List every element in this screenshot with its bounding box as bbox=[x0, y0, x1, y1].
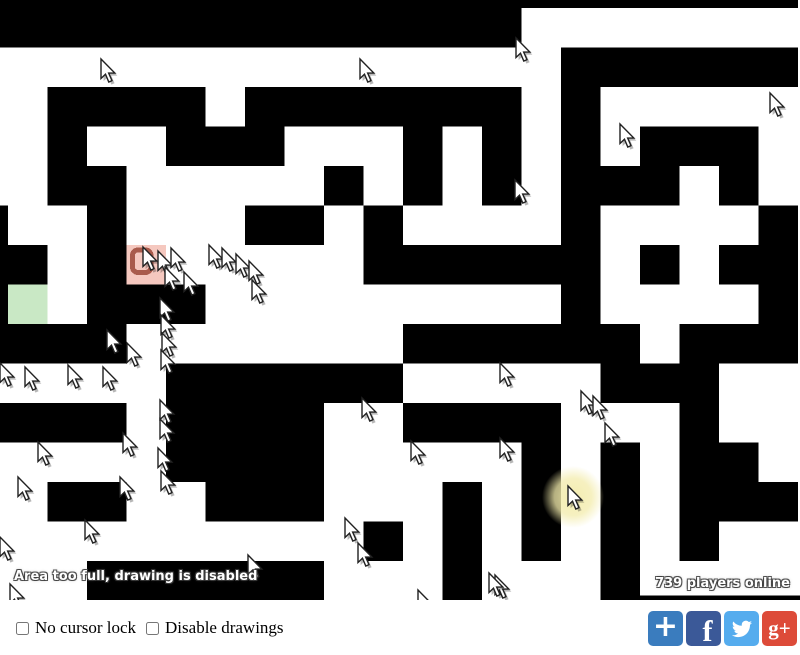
googleplus-icon: g+ bbox=[768, 618, 790, 639]
no-cursor-lock-checkbox[interactable] bbox=[16, 622, 29, 635]
player-cursor bbox=[593, 396, 609, 422]
player-cursor bbox=[0, 537, 16, 563]
player-cursor bbox=[362, 398, 378, 424]
twitter-button[interactable] bbox=[724, 611, 759, 646]
player-cursor bbox=[18, 477, 34, 503]
twitter-bird-icon bbox=[731, 618, 753, 640]
player-cursor bbox=[345, 518, 361, 544]
player-cursor bbox=[107, 330, 123, 356]
player-cursor bbox=[184, 272, 200, 298]
player-cursor bbox=[516, 38, 532, 64]
player-cursor bbox=[605, 423, 621, 449]
player-cursor bbox=[411, 441, 427, 467]
player-cursor bbox=[418, 590, 434, 600]
player-cursor bbox=[358, 543, 374, 569]
player-cursor bbox=[10, 584, 26, 600]
player-cursor bbox=[143, 247, 159, 273]
disable-drawings-checkbox[interactable] bbox=[146, 622, 159, 635]
player-cursor bbox=[0, 363, 16, 389]
player-cursor bbox=[620, 124, 636, 150]
player-cursor bbox=[770, 93, 786, 119]
player-cursor bbox=[85, 520, 101, 546]
addthis-share-icon: + bbox=[653, 612, 678, 642]
player-cursor bbox=[500, 363, 516, 389]
game-canvas[interactable]: Area too full, drawing is disabled 739 p… bbox=[0, 0, 800, 600]
addthis-share-button[interactable]: + bbox=[648, 611, 683, 646]
cursors-overlay bbox=[0, 0, 800, 600]
player-cursor bbox=[123, 433, 139, 459]
disable-drawings-label: Disable drawings bbox=[165, 618, 284, 638]
player-cursor bbox=[127, 343, 143, 369]
player-cursor bbox=[500, 438, 516, 464]
player-cursor bbox=[101, 59, 117, 85]
player-cursor bbox=[68, 365, 84, 391]
player-cursor bbox=[103, 367, 119, 393]
player-cursor bbox=[161, 471, 177, 497]
facebook-icon: f bbox=[703, 617, 713, 647]
player-cursor bbox=[171, 248, 187, 274]
options-row: No cursor lock Disable drawings bbox=[16, 618, 294, 638]
player-cursor bbox=[25, 367, 41, 393]
player-cursor bbox=[515, 180, 531, 206]
googleplus-button[interactable]: g+ bbox=[762, 611, 797, 646]
player-cursor bbox=[120, 477, 136, 503]
no-cursor-lock-label: No cursor lock bbox=[35, 618, 136, 638]
facebook-button[interactable]: f bbox=[686, 611, 721, 646]
player-cursor bbox=[360, 59, 376, 85]
bottom-ui-bar: No cursor lock Disable drawings +fg+ bbox=[0, 600, 800, 655]
player-cursor bbox=[38, 442, 54, 468]
player-cursor bbox=[248, 555, 264, 581]
share-buttons: +fg+ bbox=[648, 611, 797, 646]
